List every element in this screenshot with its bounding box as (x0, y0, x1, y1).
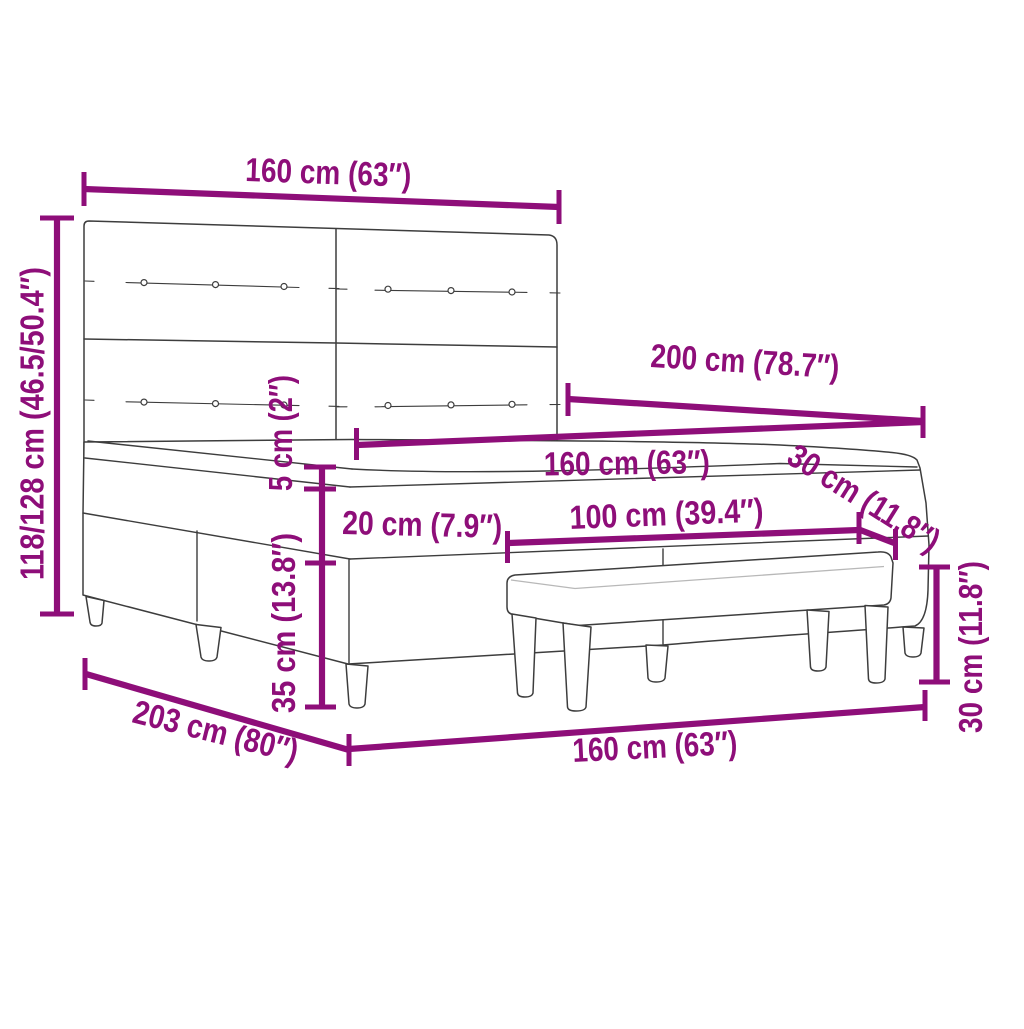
svg-text:20 cm (7.9″): 20 cm (7.9″) (342, 505, 503, 546)
svg-text:100 cm (39.4″): 100 cm (39.4″) (569, 493, 764, 537)
svg-text:118/128 cm (46.5/50.4″): 118/128 cm (46.5/50.4″) (15, 267, 52, 580)
svg-text:35 cm (13.8″): 35 cm (13.8″) (266, 533, 303, 713)
svg-text:160 cm (63″): 160 cm (63″) (245, 152, 412, 195)
svg-text:30 cm (11.8″): 30 cm (11.8″) (953, 561, 990, 733)
svg-text:160 cm (63″): 160 cm (63″) (544, 444, 711, 483)
svg-text:5 cm (2″): 5 cm (2″) (263, 375, 300, 491)
